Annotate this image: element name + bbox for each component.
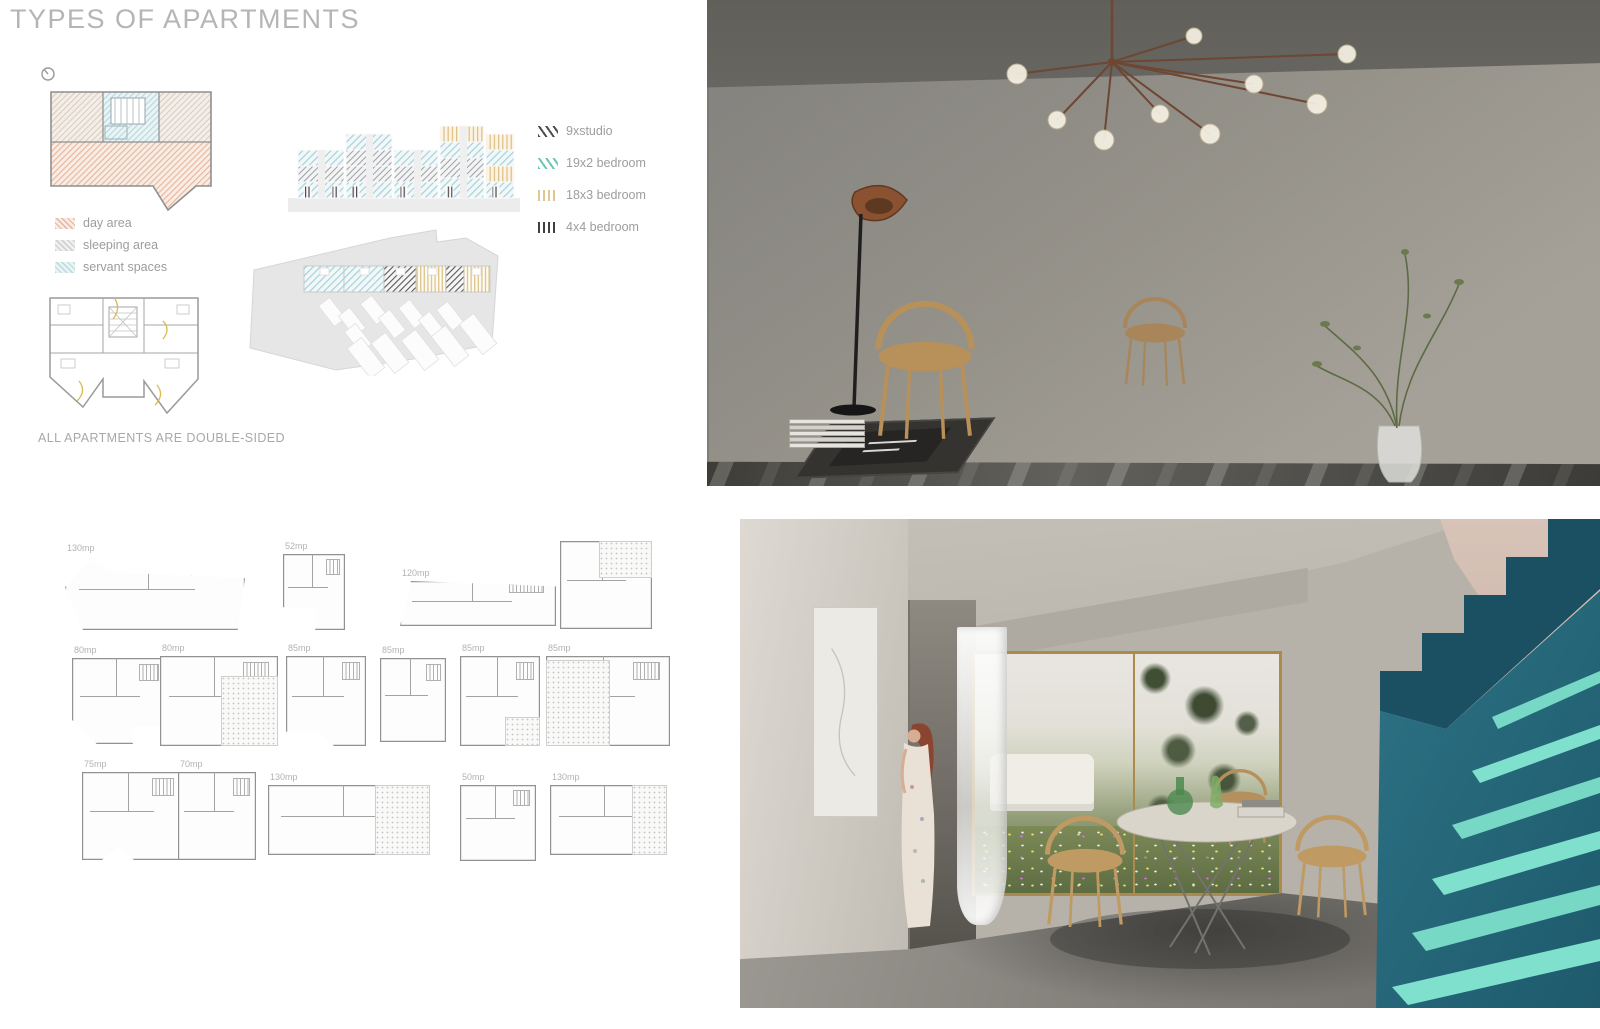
unit-plan — [460, 656, 540, 746]
unit-plan-area-label: 120mp — [402, 568, 430, 578]
unit-plan — [268, 785, 430, 855]
unit-plan — [560, 541, 652, 629]
sleeping-area-swatch — [55, 240, 75, 251]
unit-plan-area-label: 130mp — [270, 772, 298, 782]
unit-plan — [460, 785, 536, 861]
site-plan-diagram — [240, 226, 520, 376]
legend-item-sleeping-area: sleeping area — [55, 238, 158, 252]
day-area-swatch — [55, 218, 75, 229]
four-bedroom-swatch — [538, 222, 558, 233]
unit-plan-area-label: 130mp — [67, 543, 95, 553]
unit-plan-area-label: 85mp — [462, 643, 485, 653]
page-title: TYPES OF APARTMENTS — [10, 4, 360, 35]
unit-plan-area-label: 70mp — [180, 759, 203, 769]
legend-item-3bedroom: 18x3 bedroom — [538, 188, 646, 202]
staircase-teal — [1376, 519, 1600, 1008]
unit-plan — [72, 658, 167, 744]
apartment-plan-colored — [45, 86, 217, 218]
legend-label: sleeping area — [83, 238, 158, 252]
unit-plan — [546, 656, 670, 746]
two-bedroom-swatch — [538, 158, 558, 169]
chandelier — [1007, 0, 1356, 150]
unit-plan — [160, 656, 278, 746]
legend-label: 9xstudio — [566, 124, 613, 138]
unit-plan — [550, 785, 667, 855]
unit-plan-area-label: 52mp — [285, 541, 308, 551]
legend-label: 18x3 bedroom — [566, 188, 646, 202]
north-arrow-icon — [40, 66, 56, 82]
legend-label: day area — [83, 216, 132, 230]
table-shadow — [1050, 909, 1350, 969]
unit-plan-area-label: 85mp — [288, 643, 311, 653]
woman-figure — [902, 723, 935, 928]
render1-overlay — [707, 0, 1600, 486]
legend-label: 19x2 bedroom — [566, 156, 646, 170]
render-dining-stairs — [740, 519, 1600, 1008]
unit-plan-area-label: 75mp — [84, 759, 107, 769]
plant-vase — [1312, 249, 1464, 482]
floor-lamp — [830, 186, 907, 416]
unit-plan — [283, 554, 345, 630]
bentwood-chair — [1125, 299, 1185, 386]
studio-swatch — [538, 126, 558, 137]
bentwood-chair — [1298, 817, 1367, 917]
unit-plan-area-label: 85mp — [548, 643, 571, 653]
apartment-plan-gray — [45, 293, 203, 429]
unit-plan — [82, 772, 182, 860]
presentation-board: TYPES OF APARTMENTS day area sleeping ar… — [0, 0, 1600, 1029]
double-sided-note: ALL APARTMENTS ARE DOUBLE-SIDED — [38, 431, 285, 445]
legend-item-2bedroom: 19x2 bedroom — [538, 156, 646, 170]
bentwood-chair — [1048, 818, 1123, 927]
private-garden — [546, 660, 610, 746]
building-elevation-diagram — [288, 122, 520, 216]
private-garden — [375, 785, 430, 855]
unit-plan — [178, 772, 256, 860]
bentwood-chair — [879, 304, 972, 439]
unit-plan-area-label: 80mp — [74, 645, 97, 655]
legend-item-day-area: day area — [55, 216, 132, 230]
three-bedroom-swatch — [538, 190, 558, 201]
private-garden — [221, 676, 278, 746]
unit-plan — [400, 581, 556, 626]
unit-plan — [380, 658, 446, 742]
servant-spaces-swatch — [55, 262, 75, 273]
unit-plan-area-label: 85mp — [382, 645, 405, 655]
private-garden — [505, 717, 540, 746]
unit-plan-area-label: 80mp — [162, 643, 185, 653]
unit-plan — [65, 556, 245, 630]
private-garden — [599, 541, 652, 578]
legend-label: servant spaces — [83, 260, 167, 274]
private-garden — [632, 785, 667, 855]
unit-plan-area-label: 130mp — [552, 772, 580, 782]
render2-overlay — [740, 519, 1600, 1008]
legend-item-servant-spaces: servant spaces — [55, 260, 167, 274]
legend-item-studio: 9xstudio — [538, 124, 613, 138]
legend-label: 4x4 bedroom — [566, 220, 639, 234]
legend-item-4bedroom: 4x4 bedroom — [538, 220, 639, 234]
books — [1238, 807, 1284, 817]
render-living-room — [707, 0, 1600, 486]
green-bottle — [1167, 789, 1193, 815]
unit-plan-area-label: 50mp — [462, 772, 485, 782]
unit-plan — [286, 656, 366, 746]
